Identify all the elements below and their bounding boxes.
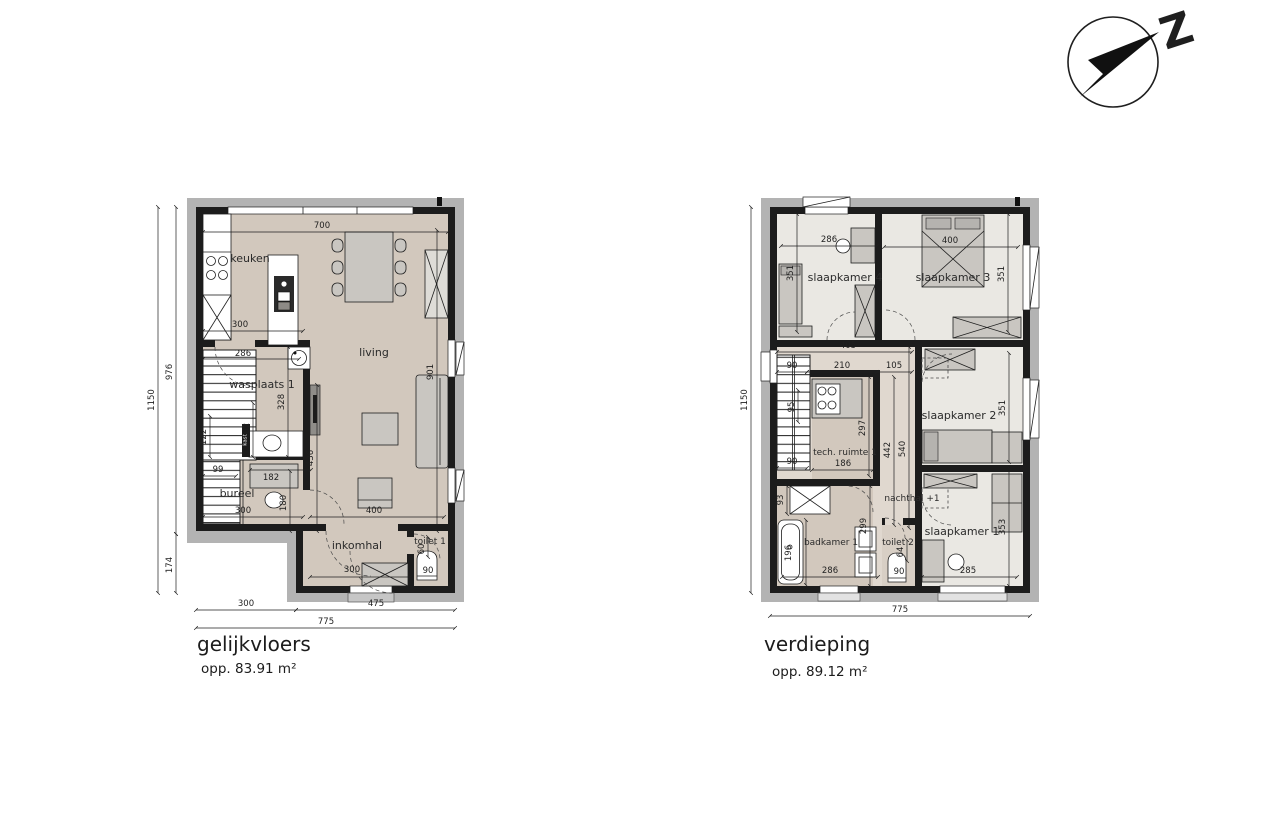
gf-kitchen-island-icon <box>268 255 298 345</box>
svg-text:93: 93 <box>776 495 786 506</box>
gf-armchair-icon <box>358 478 392 508</box>
fl-label-tech: tech. ruimte 1 <box>813 448 877 458</box>
plan-verdieping: 1150 775 286 400 351 351 351 353 405 90 … <box>740 197 1039 680</box>
svg-text:286: 286 <box>822 566 838 576</box>
gf-wardrobe-icon <box>362 563 408 586</box>
fl-label-nachthal: nachthal +1 <box>884 494 939 504</box>
fl-shower-icon <box>790 486 830 514</box>
gf-tv-unit-icon <box>310 385 320 435</box>
gf-washing-machine-icon <box>288 347 310 369</box>
svg-text:475: 475 <box>368 599 384 609</box>
svg-text:976: 976 <box>165 364 175 380</box>
fl-label-sk2: slaapkamer 2 <box>922 409 997 422</box>
gf-label-living: living <box>359 346 389 359</box>
fl-sk4-wardrobe-icon <box>855 285 875 337</box>
gf-label-toilet: toilet 1 <box>414 537 446 547</box>
svg-text:328: 328 <box>277 394 287 410</box>
svg-text:180: 180 <box>279 495 289 511</box>
gf-label-keuken: keuken <box>230 252 269 265</box>
svg-text:90: 90 <box>787 361 798 371</box>
gf-tall-cabinet-icon <box>425 250 448 318</box>
svg-text:286: 286 <box>821 235 837 245</box>
fl-area: opp. 89.12 m² <box>772 664 867 680</box>
svg-text:285: 285 <box>960 566 976 576</box>
svg-text:775: 775 <box>318 617 334 627</box>
fl-sk3-wardrobe-icon <box>953 317 1021 338</box>
svg-text:300: 300 <box>238 599 254 609</box>
gf-kitchen-counter-icon <box>203 214 231 340</box>
gf-area: opp. 83.91 m² <box>201 661 296 677</box>
fl-title: verdieping <box>764 632 870 656</box>
fl-sk1-wardrobe-icon <box>924 474 977 488</box>
svg-text:210: 210 <box>834 361 850 371</box>
svg-text:95: 95 <box>787 402 797 413</box>
fl-sk2-bed-icon <box>922 430 992 463</box>
svg-text:90: 90 <box>787 457 798 467</box>
fl-roof-mark <box>1015 197 1020 206</box>
gf-dining-table-icon <box>332 232 406 302</box>
svg-text:1150: 1150 <box>147 389 157 411</box>
svg-text:286: 286 <box>235 349 251 359</box>
plan-gelijkvloers: kast 1150 976 1 <box>147 197 464 677</box>
svg-text:300: 300 <box>344 565 360 575</box>
gf-label-wasplaats: wasplaats 1 <box>229 378 295 391</box>
north-arrow-label: Z <box>1153 2 1199 60</box>
svg-text:90: 90 <box>423 566 434 576</box>
svg-text:400: 400 <box>366 506 382 516</box>
svg-text:300: 300 <box>232 320 248 330</box>
gf-roof-mark <box>437 197 442 206</box>
fl-label-sk4: slaapkamer 4 <box>808 271 883 284</box>
svg-text:405: 405 <box>840 341 856 351</box>
fl-heating-unit-icon <box>812 379 862 418</box>
svg-text:901: 901 <box>426 364 436 380</box>
gf-title: gelijkvloers <box>197 632 311 656</box>
fl-label-badkamer: badkamer 1 <box>804 538 858 548</box>
fl-sk2-wardrobe-icon <box>925 349 975 370</box>
fl-label-sk3: slaapkamer 3 <box>916 271 991 284</box>
svg-text:105: 105 <box>886 361 902 371</box>
svg-text:351: 351 <box>998 400 1008 416</box>
floorplan-sheet: Z <box>0 0 1287 817</box>
svg-text:353: 353 <box>998 519 1008 535</box>
fl-sk2-dresser-icon <box>992 432 1022 463</box>
svg-text:182: 182 <box>263 473 279 483</box>
svg-text:442: 442 <box>883 442 893 458</box>
gf-label-inkomhal: inkomhal <box>332 539 382 552</box>
svg-text:1150: 1150 <box>740 389 750 411</box>
svg-text:775: 775 <box>892 605 908 615</box>
svg-text:64: 64 <box>896 547 906 558</box>
gf-label-bureel: bureel <box>220 487 255 500</box>
svg-text:90: 90 <box>894 567 905 577</box>
gf-laundry-worktop-icon <box>249 431 303 457</box>
svg-text:436: 436 <box>306 450 316 466</box>
svg-text:540: 540 <box>898 441 908 457</box>
fl-label-sk1: slaapkamer 1 <box>925 525 1000 538</box>
svg-text:196: 196 <box>784 545 794 561</box>
fl-label-toilet: toilet 2 <box>882 538 914 548</box>
floorplan-drawing: Z <box>0 0 1287 817</box>
svg-text:186: 186 <box>835 459 851 469</box>
north-arrow-icon: Z <box>1068 2 1200 107</box>
svg-text:300: 300 <box>235 506 251 516</box>
fl-sk1-desk-icon <box>922 540 944 582</box>
svg-text:351: 351 <box>997 266 1007 282</box>
svg-text:400: 400 <box>942 236 958 246</box>
gf-coffee-table-icon <box>362 413 398 445</box>
gf-sofa-icon <box>416 375 448 468</box>
svg-text:351: 351 <box>786 265 796 281</box>
svg-text:297: 297 <box>858 420 868 436</box>
svg-text:299: 299 <box>859 518 869 534</box>
svg-text:162: 162 <box>242 423 252 439</box>
svg-text:174: 174 <box>165 557 175 573</box>
svg-text:700: 700 <box>314 221 330 231</box>
svg-text:99: 99 <box>213 465 224 475</box>
svg-text:122: 122 <box>199 429 209 445</box>
fl-sk4-desk-icon <box>851 228 875 263</box>
